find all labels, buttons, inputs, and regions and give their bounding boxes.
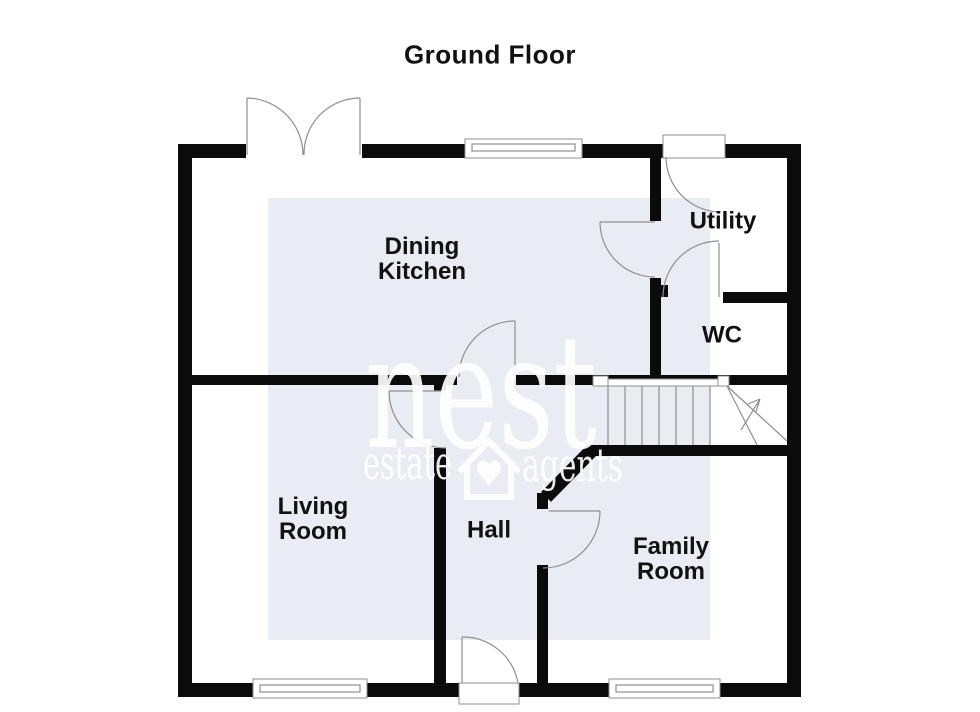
watermark-overlay: nest estate agents — [0, 0, 980, 712]
watermark-word-agents: agents — [522, 438, 623, 492]
floor-plan-page: Ground Floor Dining Kitchen Utility WC L… — [0, 0, 980, 712]
watermark: nest estate agents — [363, 301, 623, 497]
watermark-word-estate: estate — [363, 436, 452, 490]
